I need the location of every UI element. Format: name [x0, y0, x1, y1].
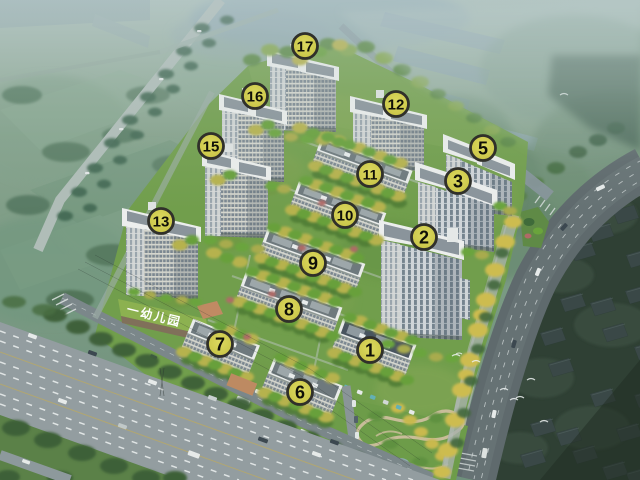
svg-text:5: 5 — [478, 139, 488, 159]
svg-text:11: 11 — [363, 167, 378, 183]
svg-text:2: 2 — [419, 228, 429, 248]
svg-text:17: 17 — [297, 38, 314, 55]
svg-text:15: 15 — [203, 138, 220, 155]
svg-text:1: 1 — [365, 341, 375, 361]
svg-text:10: 10 — [337, 207, 354, 224]
svg-text:3: 3 — [453, 172, 463, 192]
svg-text:8: 8 — [284, 300, 294, 320]
svg-text:7: 7 — [215, 335, 225, 355]
svg-text:6: 6 — [295, 383, 305, 403]
svg-text:12: 12 — [388, 96, 405, 113]
svg-text:16: 16 — [247, 88, 264, 105]
svg-text:13: 13 — [153, 213, 170, 230]
svg-text:9: 9 — [308, 254, 318, 274]
